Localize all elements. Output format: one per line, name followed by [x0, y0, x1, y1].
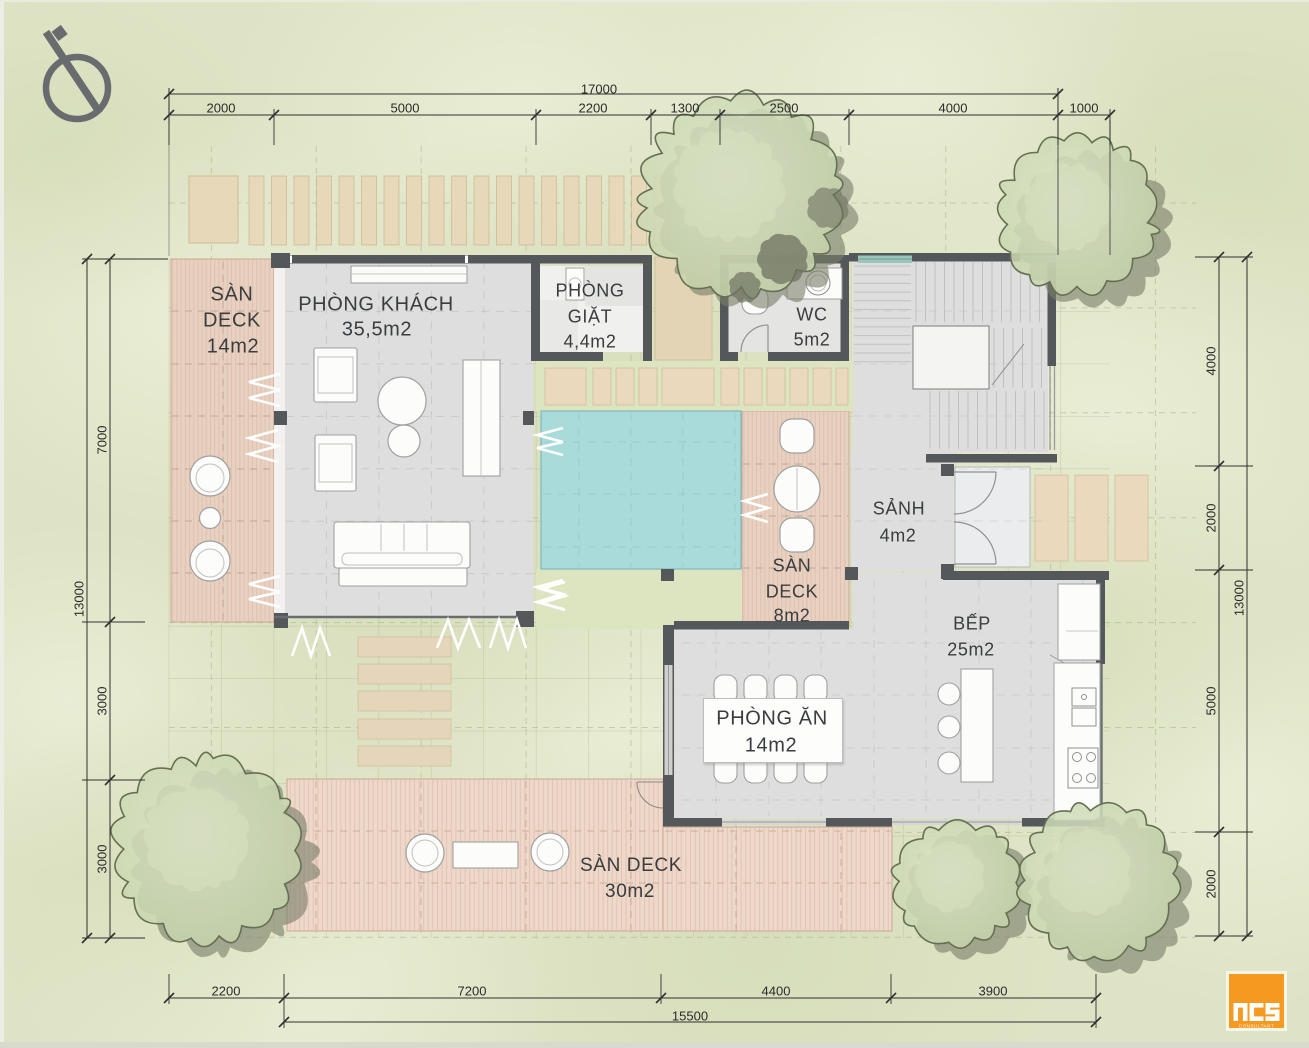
svg-text:CONSULTANT: CONSULTANT [1239, 1024, 1274, 1029]
